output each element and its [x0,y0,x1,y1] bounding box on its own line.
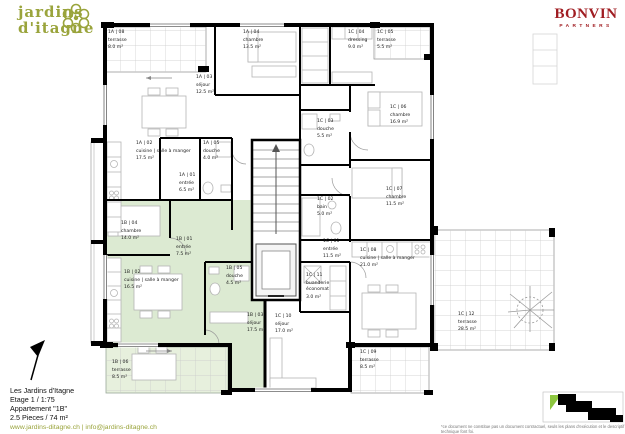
room-label-1c-03: 1C | 03douche5.5 m² [317,119,334,141]
key-plan [543,392,623,422]
room-label-1b-06: 1B | 06terrasse8.5 m² [112,360,131,382]
brand-subtitle: PARTNERS [553,24,619,29]
apartment-size: 2.5 Pieces / 74 m² [10,413,157,422]
room-label-1a-01: 1A | 01entrée6.5 m² [179,173,195,195]
north-arrow-icon [30,340,45,380]
room-label-1c-12: 1C | 12terrasse28.5 m² [458,312,477,334]
room-label-1c-06: 1C | 06chambre16.9 m² [390,105,410,127]
room-label-1a-08: 1A | 08terrasse8.0 m² [108,30,127,52]
floorplan-sheet: 1A | 08terrasse8.0 m²1A | 03séjour12.5 m… [0,0,625,434]
room-label-1a-02: 1A | 02cuisine | salle à manger17.5 m² [136,141,191,163]
room-label-1b-03: 1B | 03séjour17.5 m² [247,313,265,335]
west-balcony [91,138,105,346]
room-label-1c-07: 1C | 07chambre11.5 m² [386,187,406,209]
room-label-1b-05: 1B | 05douche4.5 m² [226,266,243,288]
room-label-1c-01: 1C | 01entrée11.5 m² [323,239,341,261]
room-label-1b-04: 1B | 04chambre14.0 m² [121,221,141,243]
room-label-1c-05: 1C | 05terrasse5.5 m² [377,30,396,52]
apartment-name: Appartement "1B" [10,404,157,413]
room-label-1c-04: 1C | 04dressing9.0 m² [348,30,367,52]
floor-plan [0,0,625,434]
adjacent-structure [533,34,557,84]
room-label-1c-10: 1C | 10séjour17.0 m² [275,314,293,336]
disclaimer-text: *ce document ne constitue pas un documen… [441,424,625,434]
room-label-1a-05: 1A | 05douche4.0 m² [203,141,220,163]
elevator [256,244,296,296]
room-label-1c-08: 1C | 08cuisine | salle à manger21.0 m² [360,248,415,270]
brand-name: BONVIN [553,6,619,23]
staircase [252,140,300,240]
room-label-1a-03: 1A | 03séjour12.5 m² [196,75,214,97]
room-label-1c-11: 1C | 11buanderieéconomat3.0 m² [306,273,329,301]
room-label-1c-09: 1C | 09terrasse8.5 m² [360,350,379,372]
stage-scale: Etage 1 / 1:75 [10,395,157,404]
title-block: Les Jardins d'Itagne Etage 1 / 1:75 Appa… [10,386,157,432]
room-label-1b-01: 1B | 01entrée7.5 m² [176,237,192,259]
project-title: Les Jardins d'Itagne [10,386,157,395]
room-label-1b-02: 1B | 02cuisine | salle à manger16.5 m² [124,270,179,292]
room-label-1c-02: 1C | 02bain5.0 m² [317,197,333,219]
bonvin-partners-logo: BONVIN PARTNERS [553,6,619,29]
room-label-1a-04: 1A | 04chambre13.5 m² [243,30,263,52]
website-link[interactable]: www.jardins-ditagne.ch | info@jardins-di… [10,423,157,432]
